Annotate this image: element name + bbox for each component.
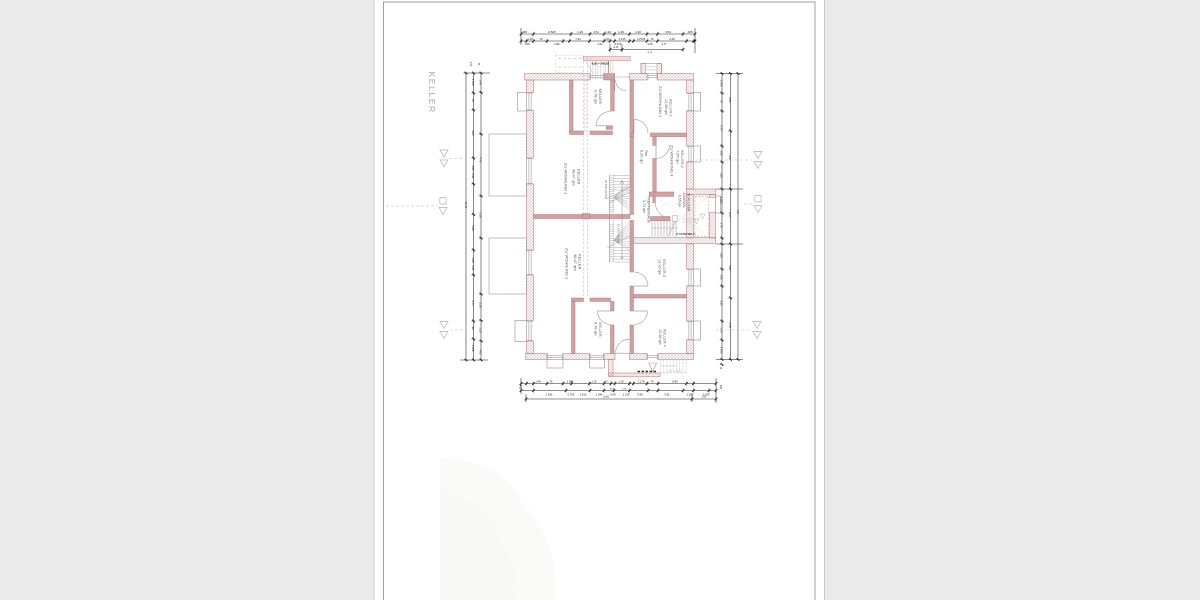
- svg-text:KELLER 3: KELLER 3: [662, 259, 666, 277]
- svg-text:1.985: 1.985: [567, 379, 574, 383]
- svg-text:76: 76: [540, 37, 543, 41]
- svg-text:1.135: 1.135: [623, 393, 630, 397]
- svg-text:KELLER 1: KELLER 1: [669, 99, 673, 117]
- svg-text:12,58 qm: 12,58 qm: [664, 99, 668, 115]
- svg-text:ZU WOHNUNG 3: ZU WOHNUNG 3: [658, 86, 663, 118]
- svg-text:1.05: 1.05: [471, 257, 475, 263]
- svg-text:1.49: 1.49: [527, 37, 533, 41]
- svg-text:2.510: 2.510: [580, 393, 587, 397]
- svg-text:2.525: 2.525: [546, 393, 553, 397]
- svg-text:ZU WOHNUNG 1: ZU WOHNUNG 1: [564, 163, 569, 195]
- svg-text:KELLER 4: KELLER 4: [663, 329, 667, 347]
- svg-text:76: 76: [720, 100, 724, 103]
- svg-text:7,55 qm: 7,55 qm: [676, 150, 680, 164]
- svg-text:15 STG 18,7/26: 15 STG 18,7/26: [617, 224, 621, 243]
- svg-text:3.51: 3.51: [665, 30, 671, 34]
- svg-text:4.43: 4.43: [479, 157, 483, 163]
- svg-text:48,47 qm: 48,47 qm: [573, 254, 578, 271]
- svg-text:1.405: 1.405: [720, 347, 724, 354]
- svg-text:1.20: 1.20: [605, 30, 611, 34]
- svg-text:63: 63: [605, 379, 608, 383]
- svg-text:6,55 qm: 6,55 qm: [678, 195, 682, 207]
- svg-text:76: 76: [651, 379, 654, 383]
- svg-text:1.10: 1.10: [591, 379, 597, 383]
- svg-text:3,71 qm: 3,71 qm: [642, 200, 646, 213]
- svg-text:31.06: 31.06: [603, 396, 610, 399]
- svg-text:5,29 qm: 5,29 qm: [640, 150, 644, 164]
- svg-text:1.405: 1.405: [720, 80, 724, 87]
- svg-text:13,16 qm: 13,16 qm: [658, 259, 662, 275]
- svg-text:1.01: 1.01: [604, 37, 610, 41]
- svg-text:4.77: 4.77: [648, 52, 653, 55]
- svg-text:11.45: 11.45: [464, 202, 467, 208]
- svg-text:4.77: 4.77: [661, 42, 667, 46]
- svg-text:-0,5% 16,5/26: -0,5% 16,5/26: [681, 233, 697, 236]
- svg-text:3.34: 3.34: [471, 130, 475, 136]
- svg-text:-0,93 = 345,62: -0,93 = 345,62: [591, 62, 610, 66]
- svg-text:3.74: 3.74: [471, 300, 475, 306]
- svg-text:1.20: 1.20: [635, 30, 641, 34]
- svg-text:1.49: 1.49: [479, 79, 483, 85]
- svg-text:5.45: 5.45: [728, 322, 732, 328]
- svg-text:KELLER 2: KELLER 2: [680, 150, 684, 168]
- svg-text:405: 405: [687, 30, 692, 34]
- svg-text:2.45: 2.45: [720, 125, 724, 131]
- svg-text:36: 36: [471, 327, 475, 330]
- svg-text:1.05: 1.05: [471, 165, 475, 171]
- svg-text:KELLER: KELLER: [427, 72, 437, 114]
- svg-text:1.2725: 1.2725: [637, 37, 646, 41]
- svg-text:2.26: 2.26: [479, 302, 483, 308]
- svg-text:1.01: 1.01: [597, 42, 603, 46]
- svg-text:1.88: 1.88: [720, 252, 724, 258]
- svg-text:3.32: 3.32: [720, 300, 724, 306]
- svg-text:15 STG 18,7/26: 15 STG 18,7/26: [604, 180, 608, 199]
- svg-text:76: 76: [651, 37, 654, 41]
- svg-text:3.51: 3.51: [728, 97, 732, 103]
- svg-text:1.625: 1.625: [687, 393, 694, 397]
- svg-text:ZU WOHNUNG 4: ZU WOHNUNG 4: [670, 145, 675, 177]
- svg-text:1.05: 1.05: [720, 274, 724, 280]
- svg-text:1.405: 1.405: [471, 79, 475, 86]
- svg-text:2.01: 2.01: [471, 173, 475, 179]
- svg-text:3.47: 3.47: [728, 212, 732, 218]
- svg-text:2.01: 2.01: [471, 265, 475, 271]
- svg-text:12,58 qm: 12,58 qm: [658, 329, 662, 345]
- svg-text:3.07: 3.07: [728, 265, 732, 271]
- svg-text:1.26: 1.26: [618, 379, 624, 383]
- svg-text:1.05: 1.05: [524, 42, 530, 46]
- svg-text:2.02: 2.02: [469, 62, 471, 67]
- svg-text:2.065: 2.065: [720, 197, 724, 204]
- svg-text:0.765: 0.765: [568, 393, 575, 397]
- svg-text:SCHLUSSR.: SCHLUSSR.: [686, 193, 690, 212]
- svg-text:1.405: 1.405: [471, 345, 475, 352]
- svg-text:2.525: 2.525: [548, 30, 556, 34]
- svg-text:7.93: 7.93: [575, 37, 581, 41]
- svg-text:6.09: 6.09: [610, 393, 616, 397]
- svg-text:9,78 qm: 9,78 qm: [593, 90, 598, 105]
- svg-text:405: 405: [719, 385, 722, 390]
- svg-text:ZU WOHNUNG 2: ZU WOHNUNG 2: [565, 248, 570, 280]
- svg-text:KELLER: KELLER: [598, 322, 602, 337]
- svg-text:17 STG 17,6/28: 17 STG 17,6/28: [660, 366, 676, 368]
- svg-text:5.20: 5.20: [479, 212, 483, 218]
- svg-text:1.88: 1.88: [720, 172, 724, 178]
- svg-text:8.89: 8.89: [672, 379, 678, 383]
- svg-text:Flur: Flur: [644, 150, 648, 157]
- svg-text:405: 405: [518, 385, 521, 390]
- svg-text:7.64: 7.64: [736, 210, 739, 215]
- svg-text:1.76: 1.76: [720, 222, 724, 228]
- svg-text:405: 405: [522, 30, 527, 34]
- svg-text:1.135: 1.135: [619, 37, 626, 41]
- svg-text:3.91: 3.91: [664, 393, 670, 397]
- svg-text:2.86: 2.86: [554, 42, 560, 46]
- svg-text:2.25: 2.25: [669, 37, 675, 41]
- svg-text:1.20: 1.20: [577, 30, 583, 34]
- svg-text:5.33: 5.33: [471, 225, 475, 231]
- svg-text:0.99: 0.99: [637, 393, 643, 397]
- svg-text:1.175: 1.175: [638, 379, 645, 383]
- svg-text:8,78 qm: 8,78 qm: [594, 322, 598, 336]
- svg-text:-2,63 = 344,92: -2,63 = 344,92: [667, 371, 682, 373]
- svg-text:1.05: 1.05: [647, 42, 653, 46]
- svg-text:48,47 qm: 48,47 qm: [572, 169, 577, 186]
- svg-text:1.15: 1.15: [479, 327, 483, 333]
- svg-text:1.05: 1.05: [720, 150, 724, 156]
- svg-text:TREPPENHAUS: TREPPENHAUS: [647, 196, 651, 224]
- svg-text:1.044: 1.044: [596, 393, 603, 397]
- svg-text:76: 76: [471, 99, 475, 102]
- svg-text:76: 76: [550, 379, 553, 383]
- svg-text:1.49: 1.49: [535, 379, 541, 383]
- svg-text:6.24: 6.24: [614, 46, 619, 49]
- svg-text:1.50: 1.50: [702, 396, 707, 399]
- svg-text:4.51: 4.51: [593, 30, 599, 34]
- svg-text:405: 405: [479, 350, 483, 355]
- svg-text:1.26: 1.26: [618, 30, 624, 34]
